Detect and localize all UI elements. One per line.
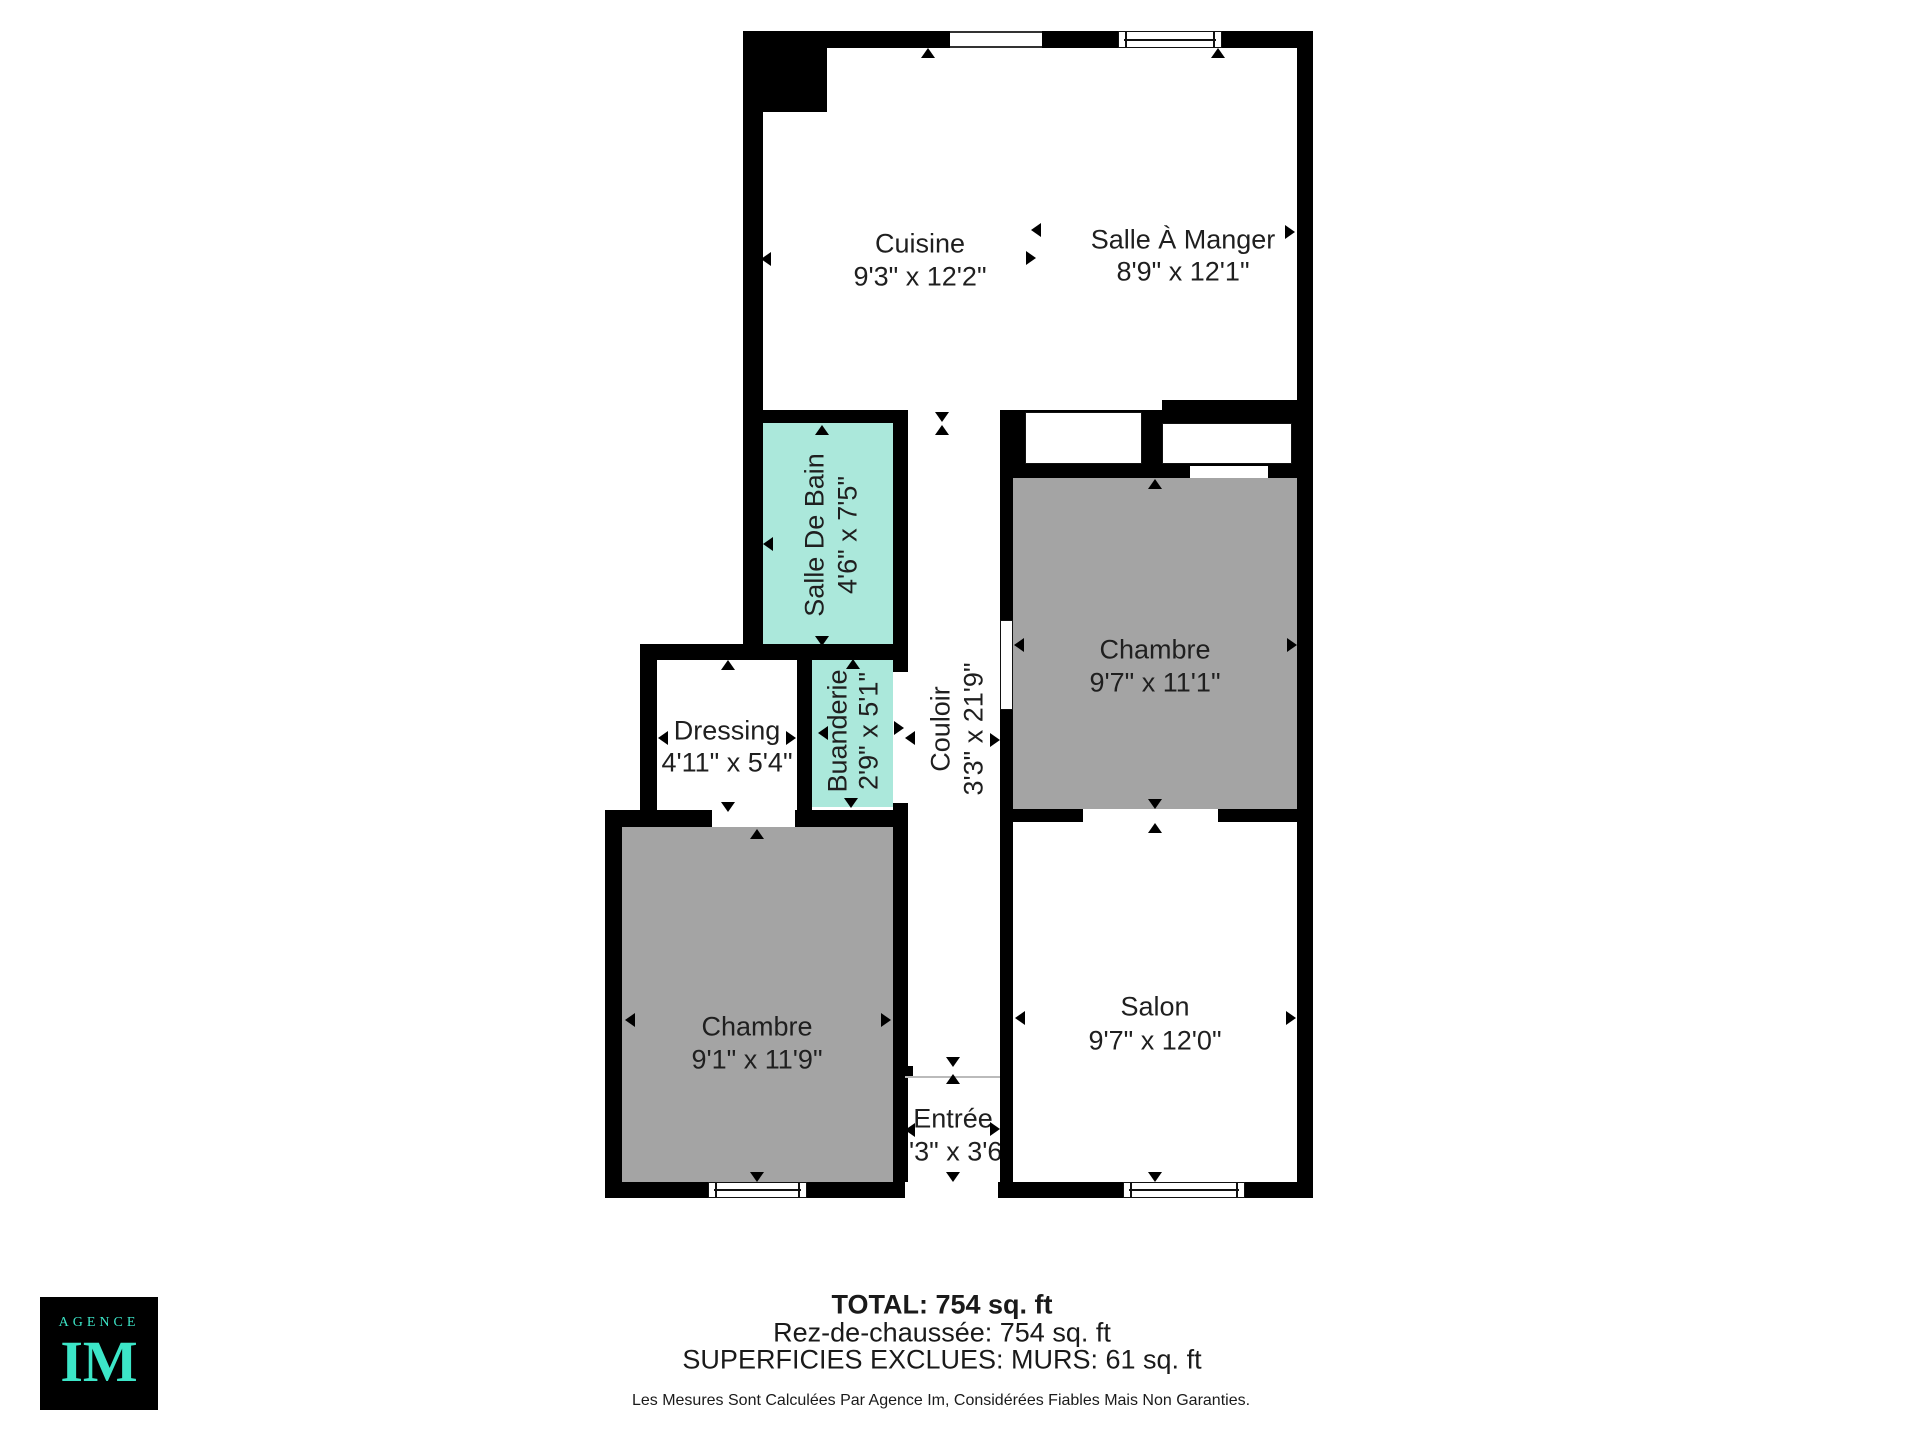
dimension-arrow	[1211, 402, 1225, 412]
dimension-arrow	[946, 1074, 960, 1084]
wall	[743, 410, 908, 423]
room-label-salle-a-manger: Salle À Manger	[1091, 227, 1276, 254]
wall	[605, 1182, 708, 1198]
window-recess	[1025, 412, 1142, 464]
room-label-salle-de-bain: Salle De Bain	[802, 453, 829, 617]
dimension-arrow	[894, 721, 904, 735]
room-dims-entree: 3'3" x 3'6"	[894, 1139, 1012, 1166]
room-dims-salon: 9'7" x 12'0"	[1088, 1028, 1221, 1055]
dimension-arrow	[658, 731, 668, 745]
dimension-arrow	[905, 1123, 915, 1137]
dimension-arrow	[721, 802, 735, 812]
wall	[640, 644, 657, 812]
wall	[1245, 1182, 1313, 1198]
wall	[893, 413, 908, 672]
dimension-arrow	[786, 731, 796, 745]
room-label-dressing: Dressing	[674, 718, 781, 745]
wall	[1297, 31, 1313, 1198]
dimension-arrow	[763, 537, 773, 551]
agency-logo: AGENCE IM	[40, 1297, 158, 1410]
wall	[605, 810, 622, 1198]
dimension-arrow	[1285, 225, 1295, 239]
dimension-arrow	[905, 731, 915, 745]
room-label-cuisine: Cuisine	[875, 231, 965, 258]
room-dims-chambre-left: 9'1" x 11'9"	[691, 1047, 822, 1074]
wall	[797, 660, 812, 822]
dimension-arrow	[846, 659, 860, 669]
dimension-arrow	[815, 636, 829, 646]
wall	[795, 810, 893, 827]
excluded-area-text: SUPERFICIES EXCLUES: MURS: 61 sq. ft	[682, 1345, 1201, 1376]
room-label-chambre-left: Chambre	[701, 1014, 812, 1041]
room-dims-salle-de-bain: 4'6" x 7'5"	[835, 476, 862, 594]
window-recess	[1162, 423, 1292, 464]
room-dims-salle-a-manger: 8'9" x 12'1"	[1116, 259, 1249, 286]
dimension-arrow	[1014, 638, 1024, 652]
wall	[807, 1182, 905, 1198]
dimension-arrow	[750, 1172, 764, 1182]
dimension-arrow	[1211, 48, 1225, 58]
room-fill-chambre-left	[622, 827, 893, 1182]
dimension-arrow	[761, 252, 771, 266]
wall	[640, 644, 908, 660]
room-dims-dressing: 4'11" x 5'4"	[661, 750, 792, 777]
dimension-arrow	[1015, 1011, 1025, 1025]
wall	[998, 1182, 1123, 1198]
dimension-arrow	[1286, 1011, 1296, 1025]
room-dims-couloir: 3'3" x 21'9"	[961, 662, 988, 795]
room-label-couloir: Couloir	[928, 686, 955, 772]
room-label-salon: Salon	[1120, 994, 1189, 1021]
wall	[743, 31, 763, 657]
window-bottom-salon	[1123, 1182, 1245, 1198]
dimension-arrow	[1148, 823, 1162, 833]
wall	[1042, 31, 1118, 48]
dimension-arrow	[721, 660, 735, 670]
window-top-salle-a-manger	[1118, 31, 1222, 48]
dimension-arrow	[1287, 638, 1297, 652]
room-dims-chambre-right: 9'7" x 11'1"	[1089, 670, 1220, 697]
dimension-arrow	[844, 798, 858, 808]
dimension-arrow	[815, 425, 829, 435]
wall	[1013, 809, 1083, 822]
dimension-arrow	[990, 733, 1000, 747]
dimension-arrow	[990, 1122, 1000, 1136]
dimension-arrow	[818, 726, 828, 740]
window-bottom-chambre	[708, 1182, 807, 1198]
agency-logo-initials: IM	[40, 1333, 158, 1391]
dimension-arrow	[1148, 1172, 1162, 1182]
wall	[1162, 400, 1313, 410]
dimension-arrow	[946, 1172, 960, 1182]
wall-opening	[1190, 466, 1268, 478]
dimension-arrow	[625, 1013, 635, 1027]
wall	[1000, 710, 1013, 1198]
room-dims-cuisine: 9'3" x 12'2"	[853, 264, 986, 291]
room-label-entree: Entrée	[913, 1106, 993, 1133]
disclaimer-text: Les Mesures Sont Calculées Par Agence Im…	[632, 1392, 1250, 1410]
dimension-arrow	[1148, 479, 1162, 489]
wall	[1000, 423, 1013, 620]
dimension-arrow	[1026, 251, 1036, 265]
dimension-arrow	[921, 48, 935, 58]
window-top-cuisine	[950, 31, 1042, 48]
dimension-arrow	[1148, 799, 1162, 809]
wall	[1218, 809, 1298, 822]
dimension-arrow	[935, 412, 949, 422]
dimension-arrow	[946, 1057, 960, 1067]
dimension-arrow	[1031, 223, 1041, 237]
door-chambre-right	[1000, 620, 1013, 710]
total-area-text: TOTAL: 754 sq. ft	[831, 1290, 1052, 1321]
dimension-arrow	[750, 829, 764, 839]
room-label-buanderie: Buanderie	[825, 669, 852, 792]
room-dims-buanderie: 2'9" x 5'1"	[856, 672, 883, 790]
room-label-chambre-right: Chambre	[1099, 637, 1210, 664]
dimension-arrow	[935, 425, 949, 435]
floor-plan: Cuisine 9'3" x 12'2" Salle À Manger 8'9"…	[0, 0, 1920, 1440]
dimension-arrow	[881, 1013, 891, 1027]
